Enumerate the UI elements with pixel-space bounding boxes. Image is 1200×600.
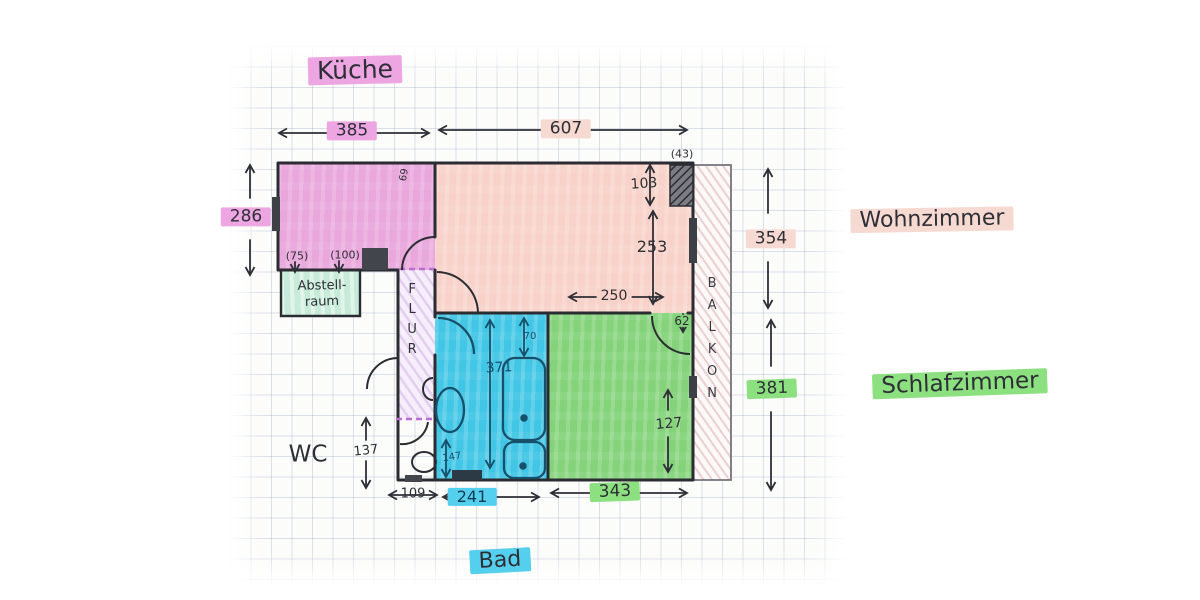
dim-bedroom-width: 343 — [589, 481, 640, 502]
dim-shaft-height: 103 — [630, 176, 658, 192]
label-hallway: FLUR — [405, 282, 418, 362]
dim-bath-width: 241 — [448, 488, 497, 506]
floorplan-sketch: Küche Wohnzimmer Schlafzimmer Bad WC Abs… — [0, 0, 1200, 600]
dim-wc-height: 137 — [353, 443, 379, 459]
dim-bedroom-height: 381 — [746, 378, 797, 399]
dim-kitchen-door: 69 — [399, 168, 411, 182]
label-bathroom: Bad — [469, 547, 531, 575]
dim-shaft-width: (43) — [671, 148, 694, 159]
washer-slab — [452, 470, 482, 480]
dim-kitchen-width: 385 — [327, 121, 377, 140]
dim-bedroom-door-offset: 127 — [655, 416, 683, 433]
wc-fixtures — [412, 378, 436, 472]
dim-living-height: 354 — [746, 229, 796, 248]
dim-kitchen-height: 286 — [221, 207, 271, 226]
shaft-hatched — [670, 165, 693, 206]
dim-living-right-height: 253 — [637, 239, 668, 255]
label-storage-line2: raum — [305, 295, 340, 309]
label-wc: WC — [289, 443, 328, 466]
dim-wc-width: 109 — [401, 487, 426, 500]
label-living-room: Wohnzimmer — [850, 206, 1013, 233]
dim-bath-height: 371 — [485, 360, 512, 376]
walls — [278, 163, 693, 480]
dim-storage-opening: (100) — [330, 249, 360, 260]
dim-bath-top-offset: 70 — [524, 332, 537, 342]
label-kitchen: Küche — [308, 55, 403, 85]
label-balcony: BALKON — [705, 276, 718, 408]
dim-living-inner-width: 250 — [597, 289, 632, 303]
dim-balcony-door-offset: 62 — [672, 315, 691, 327]
dim-living-width: 607 — [541, 119, 591, 138]
chimney-block — [362, 248, 388, 270]
threshold-slab — [405, 475, 422, 482]
dim-storage-door: (75) — [286, 250, 309, 261]
label-storage-line1: Abstell- — [297, 279, 346, 293]
